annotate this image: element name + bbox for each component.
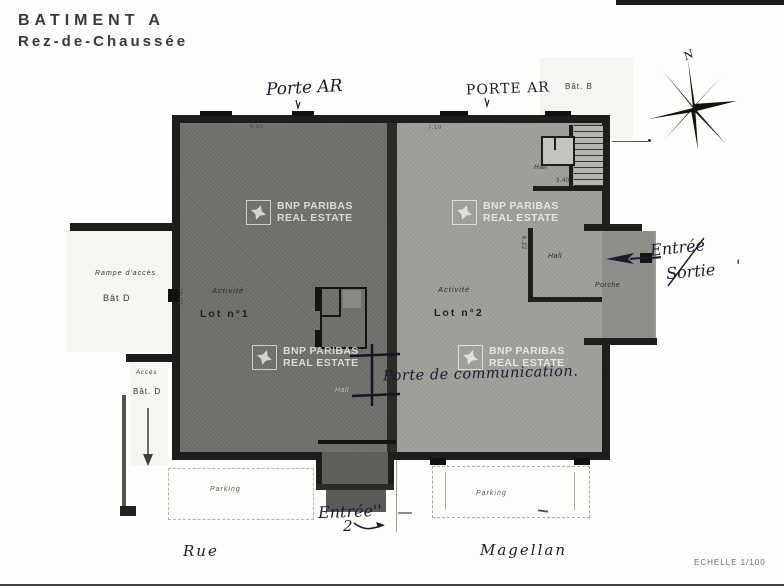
wall-acces-top [126, 354, 172, 362]
wall-top [172, 115, 610, 123]
compass-north-label: N [681, 47, 697, 64]
survey-dot [648, 139, 651, 142]
dim-left-wall: 16.91 [177, 288, 183, 306]
parking-left-label: Parking [210, 486, 241, 493]
wall-rampe-top [70, 223, 172, 231]
lot2-name: Lot n°2 [434, 307, 484, 319]
staircase [574, 125, 603, 189]
dim-top-left: 9.55 [250, 124, 264, 130]
wall-hall-bottom [528, 297, 604, 302]
dim-hall-right: 6.22 [520, 236, 526, 250]
page-title: BATIMENT A [18, 12, 165, 30]
dim-stairs: 3.40 [556, 178, 570, 184]
room-upper-divider [554, 136, 556, 150]
dim-top-right: 7.10 [428, 125, 442, 131]
door-mark-5 [430, 458, 446, 465]
door-mark-2 [292, 111, 314, 116]
annotation-porte-ar-right: PORTE AR [466, 80, 550, 99]
annotation-mark: ' [736, 256, 740, 275]
zone-rampe-label: Rampe d'accès [95, 270, 156, 277]
survey-line [612, 141, 648, 142]
room-upper [541, 136, 575, 166]
annotation-tick-left [293, 99, 303, 111]
door-mark-4 [545, 111, 571, 116]
page-subtitle: Rez-de-Chaussée [18, 33, 188, 50]
wall-right-lower [602, 338, 610, 460]
zone-bat-b-label: Bât. B [565, 82, 593, 91]
lot2-activity-label: Activité [438, 285, 470, 294]
outer-wall-left [122, 395, 126, 513]
bnp-logo-icon [452, 200, 477, 225]
scan-edge-top [616, 0, 784, 5]
porche-label: Porche [595, 282, 620, 289]
annotation-sortie: Sortie [665, 260, 716, 283]
hall-center-label: Hall [335, 387, 349, 394]
watermark-top-right: BNP PARIBASREAL ESTATE [452, 200, 559, 225]
compass-rose: N [638, 46, 748, 156]
bnp-logo-icon [246, 200, 271, 225]
street-name-left: Rue [183, 542, 219, 560]
door-mark-3 [440, 111, 468, 116]
zone-rampe-acces [66, 230, 172, 352]
zone-acces-label: Accès [136, 370, 157, 376]
floor-plan-scan: BATIMENT A Rez-de-Chaussée N Bât. B Ramp… [0, 0, 784, 588]
lot1-name: Lot n°1 [200, 308, 250, 320]
annotation-porte-ar-left: Porte AR [266, 76, 343, 100]
watermark-bottom-left: BNP PARIBASREAL ESTATE [252, 345, 359, 370]
parking-right-tick-2 [574, 472, 575, 510]
wall-right-upper [602, 115, 610, 230]
core-jamb-1 [315, 287, 320, 311]
zone-bat-d-lower-label: Bât. D [133, 387, 161, 396]
watermark-line2: REAL ESTATE [483, 213, 559, 225]
door-mark-6 [574, 458, 590, 465]
parking-right-label: Parking [476, 490, 507, 497]
core-room-divider-v [339, 289, 341, 317]
porch-wall-top [584, 224, 642, 231]
entree-bottom-arrow [352, 519, 386, 533]
parking-right-tick-1 [445, 472, 446, 510]
core-room-divider-h [322, 315, 341, 317]
entrance-tick [398, 512, 412, 514]
core-wall-low [318, 440, 396, 444]
lot1-activity-label: Activité [212, 286, 244, 295]
bnp-logo-icon [252, 345, 277, 370]
entrance-line [396, 460, 397, 532]
hall-stairs-label: Hall [534, 164, 547, 171]
hall-right-label: Hall [548, 253, 562, 260]
scale-label: ECHELLE 1/100 [694, 558, 766, 567]
porch-wall-bottom [584, 338, 657, 345]
scan-edge-bottom [0, 584, 784, 586]
annotation-tick-right [482, 97, 492, 109]
parking-left-bay [168, 468, 314, 520]
door-mark-1 [200, 111, 232, 116]
watermark-line1: BNP PARIBAS [489, 346, 565, 358]
party-wall [387, 115, 397, 460]
core-room-light [343, 290, 361, 308]
watermark-line1: BNP PARIBAS [483, 201, 559, 213]
zone-bat-d-upper-label: Bât D [103, 293, 131, 303]
watermark-top-left: BNP PARIBASREAL ESTATE [246, 200, 353, 225]
watermark-line2: REAL ESTATE [277, 213, 353, 225]
wall-under-stairs [533, 186, 605, 191]
wall-hall-left [528, 228, 533, 302]
access-direction-arrow [138, 408, 158, 466]
street-name-right: Magellan [480, 541, 567, 559]
parking-right-bay [432, 466, 590, 518]
watermark-line1: BNP PARIBAS [277, 201, 353, 213]
outer-wall-corner [120, 506, 136, 516]
